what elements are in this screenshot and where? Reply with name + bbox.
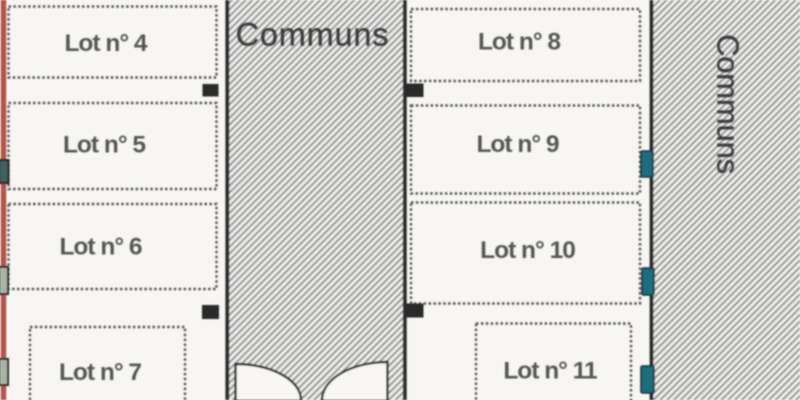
svg-text:Lot n° 5: Lot n° 5 [63, 132, 145, 159]
svg-text:Communs: Communs [236, 17, 390, 53]
svg-text:Lot n° 11: Lot n° 11 [503, 358, 597, 385]
svg-text:Lot n° 7: Lot n° 7 [59, 359, 141, 386]
svg-text:Communs: Communs [711, 34, 746, 174]
svg-text:Lot n° 9: Lot n° 9 [476, 131, 558, 158]
svg-text:Lot n° 8: Lot n° 8 [478, 29, 560, 56]
svg-text:Lot n° 6: Lot n° 6 [59, 234, 141, 261]
svg-text:Lot n° 10: Lot n° 10 [480, 237, 575, 264]
svg-text:Lot n° 4: Lot n° 4 [64, 30, 147, 57]
